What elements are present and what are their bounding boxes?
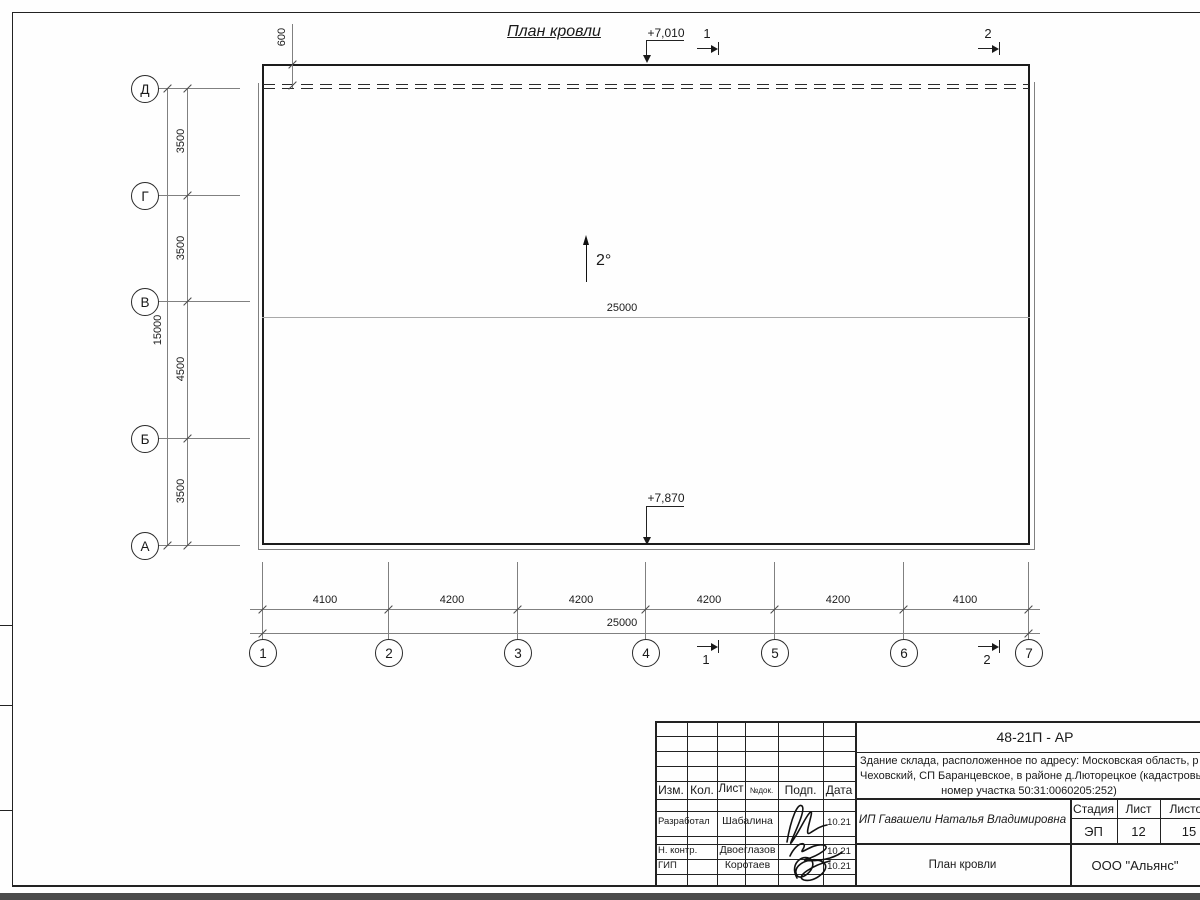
axis-bubble-1: 1 (249, 639, 277, 667)
frame-margin-tick (0, 705, 12, 706)
axis-bubble-7: 7 (1015, 639, 1043, 667)
titleblock-col-izm: Изм. (655, 783, 687, 797)
slope-label: 2° (596, 252, 611, 270)
doc-code: 48-21П - АР (855, 729, 1200, 745)
titleblock-col-podp: Подп. (778, 783, 823, 797)
project-description-line: Чеховский, СП Баранцевское, в районе д.Л… (860, 770, 1198, 782)
roof-mid-line (262, 317, 1030, 318)
signer-name: Двоеглазов (717, 844, 778, 856)
slope-arrow-line (586, 243, 587, 282)
titleblock-row-line (855, 798, 1200, 800)
axis-line-g (157, 195, 240, 196)
axis-stub-2 (388, 562, 389, 640)
section-mark-1-top-arrow (711, 45, 718, 53)
left-segment-dim-line (187, 88, 188, 545)
axis-bubble-b: Б (131, 425, 159, 453)
axis-bubble-5: 5 (761, 639, 789, 667)
left-dim-label: 3500 (175, 461, 187, 521)
titleblock-row-line (655, 781, 855, 782)
signer-name: Шабалина (717, 815, 778, 827)
signature-korotaev (786, 850, 842, 886)
titleblock-col-ndok: №док. (745, 786, 778, 795)
frame-margin-tick (0, 810, 12, 811)
elevation-bottom-shelf (646, 506, 684, 507)
offset-dim-line (292, 24, 293, 88)
sheet-title: План кровли (855, 859, 1070, 871)
titleblock-row-line (855, 843, 1200, 845)
elevation-bottom-label: +7,870 (638, 491, 694, 505)
bottom-dim-label: 4200 (679, 594, 739, 606)
left-total-dim-line (167, 88, 168, 545)
stage-value: ЭП (1070, 824, 1117, 839)
sheet-value: 12 (1117, 824, 1160, 839)
slope-arrow-head (583, 235, 589, 245)
section-mark-2-bottom-bar (999, 640, 1000, 653)
frame-margin-tick (0, 625, 12, 626)
elevation-top-shelf (646, 40, 684, 41)
project-description-line: Здание склада, расположенное по адресу: … (860, 755, 1198, 767)
sheet-label: Лист (1117, 802, 1160, 816)
axis-stub-5 (774, 562, 775, 640)
axis-bubble-v: В (131, 288, 159, 316)
roof-hidden-line-lower (263, 88, 1029, 89)
axis-stub-7 (1028, 562, 1029, 640)
drawing-sheet: План кровли 25000 2° +7,010 +7,870 1 2 1… (0, 0, 1200, 900)
roof-overhang-bottom (258, 549, 1035, 550)
section-mark-1-top-label: 1 (700, 26, 714, 41)
signer-role: ГИП (658, 860, 677, 871)
bottom-dim-label: 4200 (422, 594, 482, 606)
frame-top (12, 12, 1200, 13)
roof-hidden-line-upper (263, 84, 1029, 85)
section-mark-1-bottom-bar (718, 640, 719, 653)
titleblock-row-line (655, 751, 855, 752)
titleblock-left-border (655, 721, 657, 886)
axis-bubble-6: 6 (890, 639, 918, 667)
roof-overhang-left (258, 83, 259, 549)
left-dim-label: 4500 (175, 339, 187, 399)
left-dim-label: 3500 (175, 218, 187, 278)
signer-name: Коротаев (717, 859, 778, 871)
client-name: ИП Гавашели Наталья Владимировна (857, 814, 1068, 826)
titleblock-row-line (655, 736, 855, 737)
project-description-line: номер участка 50:31:0060205:252) (860, 785, 1198, 797)
section-mark-2-bottom-arrow (992, 643, 999, 651)
frame-left (12, 12, 13, 886)
axis-bubble-2: 2 (375, 639, 403, 667)
section-mark-2-top-label: 2 (981, 26, 995, 41)
stage-label: Стадия (1070, 802, 1117, 816)
left-dim-label: 3500 (175, 111, 187, 171)
axis-line-b (157, 438, 250, 439)
titleblock-col-line (687, 721, 688, 886)
elevation-top-leader (646, 40, 647, 56)
axis-bubble-3: 3 (504, 639, 532, 667)
section-mark-2-bottom-label: 2 (980, 652, 994, 667)
section-mark-1-bottom-arrow (711, 643, 718, 651)
titleblock-row-line (1070, 818, 1200, 819)
titleblock-col-data: Дата (823, 783, 855, 797)
axis-line-d (157, 88, 240, 89)
elevation-bottom-leader (646, 506, 647, 538)
scan-edge (0, 893, 1200, 900)
offset-dim-label: 600 (276, 7, 288, 67)
elevation-top-label: +7,010 (638, 26, 694, 40)
bottom-total-dim-label: 25000 (592, 617, 652, 629)
company-name: ООО "Альянс" (1070, 858, 1200, 873)
titleblock-row-line (855, 752, 1200, 753)
titleblock-col-list: Лист (717, 783, 745, 795)
page-title: План кровли (494, 23, 614, 41)
axis-line-v (157, 301, 250, 302)
section-mark-1-top-bar (718, 42, 719, 55)
axis-bubble-g: Г (131, 182, 159, 210)
axis-bubble-4: 4 (632, 639, 660, 667)
titleblock-col-kol: Кол. (687, 783, 717, 797)
axis-bubble-d: Д (131, 75, 159, 103)
signer-role: Н. контр. (658, 845, 697, 856)
axis-line-a (157, 545, 240, 546)
bottom-dim-label: 4100 (295, 594, 355, 606)
bottom-total-dim-line (250, 633, 1040, 634)
axis-stub-6 (903, 562, 904, 640)
titleblock-top-border (655, 721, 1200, 723)
roof-overhang-right (1034, 82, 1035, 549)
section-mark-2-top-bar (999, 42, 1000, 55)
elevation-bottom-arrow (643, 537, 651, 545)
sheets-value: 15 (1160, 824, 1200, 839)
titleblock-row-line (655, 766, 855, 767)
roof-width-label: 25000 (592, 302, 652, 314)
bottom-dim-label: 4200 (808, 594, 868, 606)
bottom-dim-label: 4200 (551, 594, 611, 606)
section-mark-2-top-arrow (992, 45, 999, 53)
axis-bubble-a: А (131, 532, 159, 560)
axis-stub-1 (262, 562, 263, 640)
axis-stub-3 (517, 562, 518, 640)
sheets-label: Листов (1160, 802, 1200, 816)
titleblock-col-line (778, 721, 779, 886)
signer-role: Разработал (658, 816, 710, 827)
bottom-dim-label: 4100 (935, 594, 995, 606)
frame-bottom (12, 885, 1200, 887)
elevation-top-arrow (643, 55, 651, 63)
section-mark-1-bottom-label: 1 (699, 652, 713, 667)
